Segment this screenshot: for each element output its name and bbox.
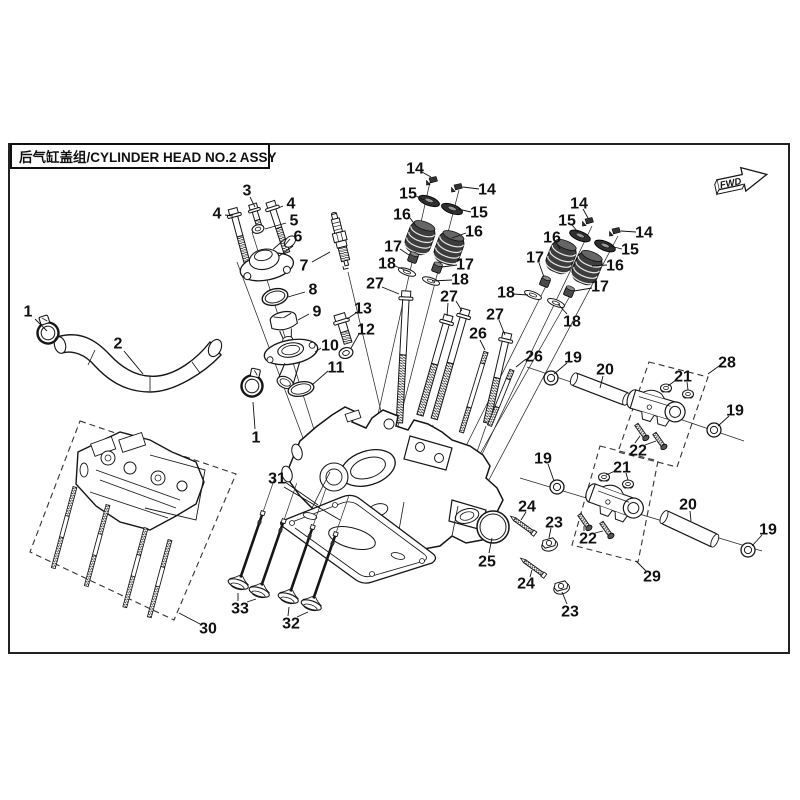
part-number-19: 19 bbox=[564, 350, 582, 367]
part-valve-spring bbox=[402, 218, 438, 258]
part-number-11: 11 bbox=[328, 360, 345, 377]
part-number-15: 15 bbox=[470, 205, 488, 222]
part-number-15: 15 bbox=[399, 186, 417, 203]
part-rocker-arm-upper bbox=[623, 384, 689, 431]
part-valve-keeper bbox=[610, 228, 621, 237]
part-number-24: 24 bbox=[518, 499, 536, 516]
part-number-14: 14 bbox=[406, 161, 424, 178]
part-number-27: 27 bbox=[486, 307, 504, 324]
part-valve-keeper bbox=[452, 184, 463, 193]
exploded-diagram: FWD bbox=[0, 0, 800, 800]
part-number-18: 18 bbox=[563, 314, 581, 331]
part-number-2: 2 bbox=[114, 336, 123, 353]
part-gasket-8 bbox=[260, 286, 289, 308]
part-number-14: 14 bbox=[570, 196, 588, 213]
part-number-18: 18 bbox=[378, 256, 396, 273]
part-number-16: 16 bbox=[393, 207, 411, 224]
part-number-14: 14 bbox=[478, 182, 496, 199]
part-spark-plug-7 bbox=[327, 211, 354, 270]
part-valve-seal bbox=[539, 275, 551, 288]
title-box: 后气缸盖组/CYLINDER HEAD NO.2 ASSY bbox=[10, 143, 270, 169]
part-number-8: 8 bbox=[309, 282, 318, 299]
leader-line bbox=[298, 314, 309, 320]
part-number-29: 29 bbox=[643, 569, 661, 586]
part-number-4: 4 bbox=[287, 196, 296, 213]
part-lock-nut-23 bbox=[552, 580, 571, 596]
leader-line bbox=[442, 265, 457, 267]
part-lock-nut-23 bbox=[540, 537, 559, 553]
part-number-27: 27 bbox=[366, 276, 384, 293]
part-number-19: 19 bbox=[726, 403, 744, 420]
part-number-20: 20 bbox=[679, 497, 697, 514]
part-rocker-arm-lower bbox=[581, 478, 647, 527]
part-spring-seat bbox=[546, 297, 565, 310]
part-head-bolt-27a bbox=[392, 291, 413, 424]
part-spring-retainer bbox=[440, 201, 464, 217]
part-adjuster-screw-22 bbox=[577, 512, 593, 531]
part-adjuster-nut-21 bbox=[623, 480, 634, 489]
part-number-14: 14 bbox=[635, 225, 653, 242]
part-adjuster-screw-22 bbox=[634, 422, 650, 441]
part-washer-19 bbox=[544, 371, 558, 385]
part-number-1: 1 bbox=[24, 304, 33, 321]
part-number-27: 27 bbox=[440, 289, 458, 306]
part-number-17: 17 bbox=[526, 250, 544, 267]
part-valve-33a bbox=[227, 472, 286, 592]
leader-line bbox=[288, 292, 305, 297]
part-number-20: 20 bbox=[596, 362, 614, 379]
part-adjuster-nut-21 bbox=[661, 384, 672, 393]
leader-line bbox=[253, 402, 255, 429]
part-number-30: 30 bbox=[199, 621, 217, 638]
part-spring-retainer bbox=[417, 193, 441, 209]
part-water-hose bbox=[52, 335, 224, 392]
part-number-18: 18 bbox=[497, 285, 515, 302]
leader-line bbox=[312, 252, 330, 262]
part-seal-ring-25 bbox=[477, 511, 509, 543]
part-adjuster-screw-22 bbox=[652, 431, 668, 450]
part-number-6: 6 bbox=[294, 229, 303, 246]
leader-line bbox=[562, 592, 567, 604]
part-number-26: 26 bbox=[525, 349, 543, 366]
part-number-26: 26 bbox=[469, 326, 487, 343]
part-number-18: 18 bbox=[451, 272, 469, 289]
part-washer-5 bbox=[251, 223, 265, 234]
part-adjuster-screw-22 bbox=[599, 520, 615, 539]
part-number-5: 5 bbox=[290, 213, 299, 230]
part-adjuster-nut-21 bbox=[683, 390, 694, 399]
part-number-4: 4 bbox=[213, 206, 222, 223]
part-spring-retainer bbox=[593, 238, 617, 255]
part-hose-clamp-2 bbox=[240, 367, 266, 399]
part-valve-keeper bbox=[583, 218, 594, 227]
leader-line bbox=[179, 613, 200, 624]
part-washer-12 bbox=[338, 346, 354, 360]
part-number-1: 1 bbox=[252, 430, 261, 447]
part-number-16: 16 bbox=[543, 230, 561, 247]
part-number-3: 3 bbox=[243, 183, 252, 200]
part-number-24: 24 bbox=[517, 576, 535, 593]
part-number-28: 28 bbox=[718, 355, 736, 372]
part-number-17: 17 bbox=[384, 239, 402, 256]
part-number-23: 23 bbox=[545, 515, 563, 532]
part-number-33: 33 bbox=[231, 601, 249, 618]
part-number-17: 17 bbox=[591, 279, 609, 296]
part-valve-seal bbox=[563, 285, 575, 298]
part-rocker-shaft-20b bbox=[658, 509, 720, 548]
part-number-21: 21 bbox=[613, 460, 631, 477]
part-head-assembly-30 bbox=[51, 432, 205, 618]
part-valve-seal bbox=[431, 261, 443, 274]
fwd-arrow: FWD bbox=[712, 163, 769, 197]
part-number-32: 32 bbox=[282, 616, 300, 633]
part-number-22: 22 bbox=[629, 443, 647, 460]
leader-line bbox=[621, 231, 636, 232]
page-title: 后气缸盖组/CYLINDER HEAD NO.2 ASSY bbox=[19, 146, 277, 166]
part-number-31: 31 bbox=[268, 471, 286, 488]
part-number-15: 15 bbox=[621, 242, 639, 259]
part-spring-retainer bbox=[568, 228, 592, 245]
part-valve-33b bbox=[248, 480, 307, 600]
part-number-10: 10 bbox=[321, 338, 339, 355]
leader-line bbox=[312, 371, 328, 385]
part-number-7: 7 bbox=[300, 258, 309, 275]
part-number-19: 19 bbox=[759, 522, 777, 539]
part-number-13: 13 bbox=[354, 301, 372, 318]
part-number-25: 25 bbox=[478, 554, 496, 571]
part-number-22: 22 bbox=[579, 531, 597, 548]
part-number-9: 9 bbox=[313, 304, 322, 321]
part-number-23: 23 bbox=[561, 604, 579, 621]
part-number-19: 19 bbox=[534, 451, 552, 468]
part-washer-19 bbox=[550, 480, 564, 494]
part-number-16: 16 bbox=[465, 224, 483, 241]
part-number-15: 15 bbox=[558, 213, 576, 230]
leader-line bbox=[463, 187, 479, 189]
part-number-21: 21 bbox=[674, 369, 692, 386]
part-valve-keeper bbox=[427, 177, 438, 186]
part-number-16: 16 bbox=[606, 258, 624, 275]
leader-line bbox=[382, 287, 399, 294]
part-number-12: 12 bbox=[357, 322, 375, 339]
